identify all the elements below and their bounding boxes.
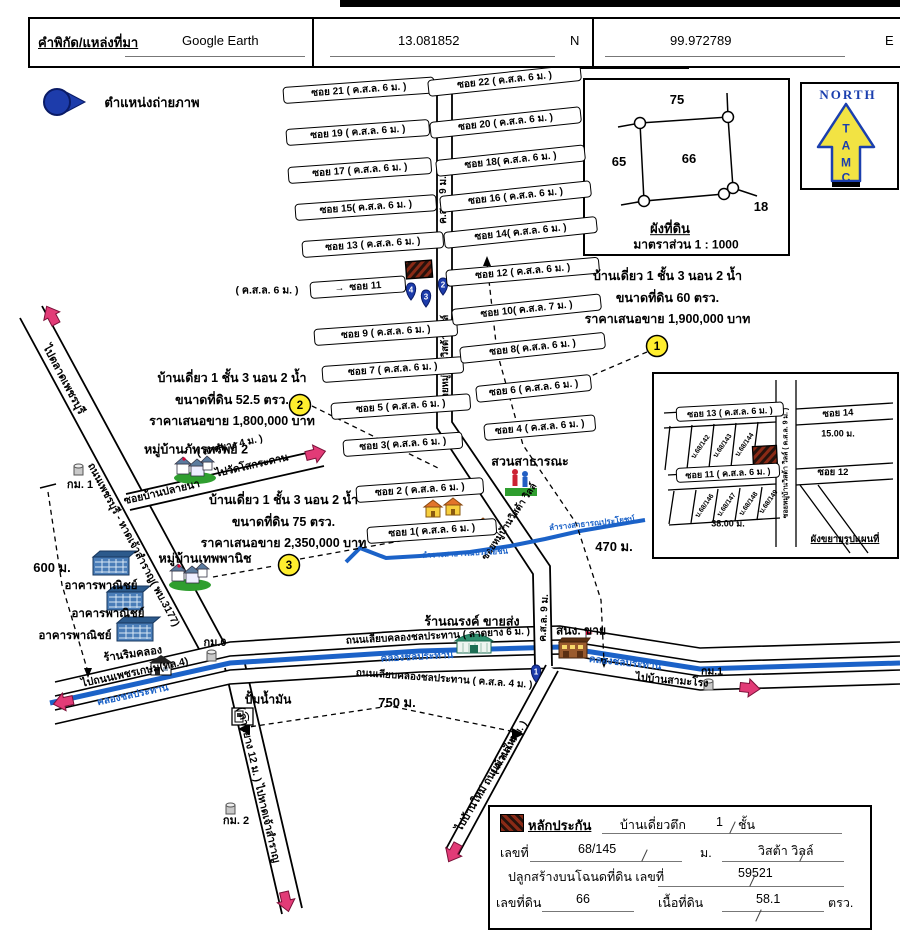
map-page: 4 3 2 1 1 2 3 xyxy=(0,0,900,945)
area-value: 58.1 xyxy=(756,892,780,906)
house-type-value: บ้านเดี่ยวตึก xyxy=(620,815,686,835)
latitude-value: 13.081852 xyxy=(398,33,459,48)
header-label: คำพิกัด/แหล่งที่มา xyxy=(38,32,138,53)
svg-text:3: 3 xyxy=(286,560,292,572)
soi-11-prefix: ( ค.ส.ล. 6 ม. ) xyxy=(236,285,299,296)
listing-3-annotation: บ้านเดี่ยว 1 ชั้น 3 นอน 2 น้ำ ขนาดที่ดิน… xyxy=(196,490,371,555)
commercial-label-3: อาคารพาณิชย์ xyxy=(39,630,112,642)
house-icon xyxy=(444,498,462,515)
house-icon xyxy=(424,500,442,517)
svg-text:1: 1 xyxy=(654,341,661,353)
area-unit: ตรว. xyxy=(828,893,853,913)
legend-photo-icon xyxy=(44,89,85,115)
village-houses-icon xyxy=(169,563,211,591)
svg-text:4: 4 xyxy=(409,286,414,295)
guarantee-table: หลักประกัน บ้านเดี่ยวตึก 1 ชั้น เลขที่ 6… xyxy=(488,805,872,930)
commercial-label-1: อาคารพาณิชย์ xyxy=(65,580,138,592)
km0-label: กม.0 xyxy=(203,638,226,650)
north-box xyxy=(800,82,899,190)
soi-11-arrow-icon: → xyxy=(334,283,345,295)
sales-office-label: สนง. ขาย xyxy=(556,625,606,638)
no-value: 68/145 xyxy=(578,842,616,856)
hatch-swatch-icon xyxy=(500,814,524,832)
park-label: สวนสาธารณะ xyxy=(491,455,569,468)
deed-label: ปลูกสร้างบนโฉนดที่ดิน เลขที่ xyxy=(508,867,664,887)
commercial-building-icon xyxy=(93,551,136,575)
km2-label: กม. 2 xyxy=(223,816,249,828)
svg-text:3: 3 xyxy=(424,293,429,302)
km-post-icon xyxy=(226,803,235,814)
header-divider xyxy=(592,19,594,66)
moo-value: วิสต้า วิลล์ xyxy=(758,841,814,861)
header-rule xyxy=(125,56,305,57)
listing-2-annotation: บ้านเดี่ยว 1 ชั้น 3 นอน 2 น้ำ ขนาดที่ดิน… xyxy=(148,368,316,433)
header-divider xyxy=(312,19,314,66)
header-source: Google Earth xyxy=(182,33,259,48)
commercial-building-icon xyxy=(117,617,160,641)
land-no-value: 66 xyxy=(576,892,590,906)
table-title: หลักประกัน xyxy=(528,815,591,836)
listing-1-annotation: บ้านเดี่ยว 1 ชั้น 3 นอน 2 น้ำ ขนาดที่ดิน… xyxy=(570,266,765,331)
deed-value: 59521 xyxy=(738,866,773,880)
photo-point-4: 4 xyxy=(406,283,415,300)
km1-left-label: กม. 1 xyxy=(67,480,93,492)
commercial-label-2: อาคารพาณิชย์ xyxy=(72,608,145,620)
header-rule xyxy=(330,56,555,57)
plot-diagram-box xyxy=(583,78,790,256)
latitude-dir: N xyxy=(570,33,579,48)
scan-strip xyxy=(340,0,900,7)
no-label: เลขที่ xyxy=(500,843,529,863)
floors-value: 1 xyxy=(716,815,723,829)
header-box: คำพิกัด/แหล่งที่มา Google Earth 13.08185… xyxy=(28,17,900,68)
floors-unit: ชั้น xyxy=(738,815,755,835)
svg-text:1: 1 xyxy=(534,668,539,677)
area-label: เนื้อที่ดิน xyxy=(658,893,703,913)
listing-circle-3: 3 xyxy=(279,555,300,576)
photo-legend-label: ตำแหน่งถ่ายภาพ xyxy=(104,96,199,110)
listing-circle-1: 1 xyxy=(647,336,668,357)
gas-station-label: ปั้มน้ำมัน xyxy=(245,694,292,707)
subject-property-marker xyxy=(405,260,432,279)
longitude-value: 99.972789 xyxy=(670,33,731,48)
header-rule xyxy=(605,56,845,57)
km-post-icon xyxy=(74,464,83,475)
photo-point-3: 3 xyxy=(421,290,430,307)
longitude-dir: E xyxy=(885,33,894,48)
land-no-label: เลขที่ดิน xyxy=(496,893,541,913)
measure-750: 750 ม. xyxy=(378,696,415,710)
km1-right-label: กม.1 xyxy=(701,666,723,677)
measure-600: 600 ม. xyxy=(33,561,70,575)
moo-label: ม. xyxy=(700,843,712,863)
measure-470: 470 ม. xyxy=(595,540,632,554)
km-post-icon xyxy=(207,650,216,661)
svg-text:2: 2 xyxy=(441,281,446,290)
